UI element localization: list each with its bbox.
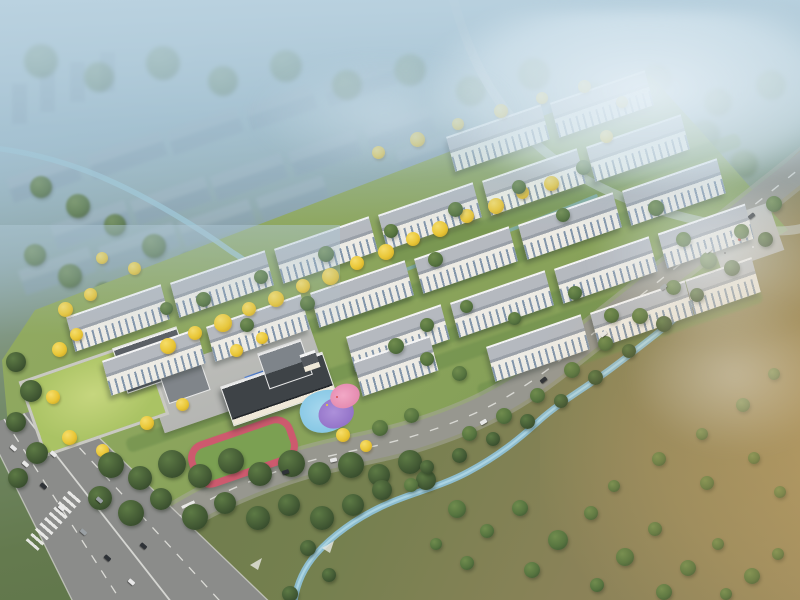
tree — [430, 538, 442, 550]
tree — [758, 232, 773, 247]
tree — [496, 408, 512, 424]
tree — [128, 466, 152, 490]
tree — [342, 494, 364, 516]
tree — [648, 522, 662, 536]
tree — [360, 440, 372, 452]
tree — [318, 246, 334, 262]
tree — [420, 352, 434, 366]
tree — [404, 408, 419, 423]
tree — [254, 270, 268, 284]
tree — [536, 92, 548, 104]
tree — [308, 462, 331, 485]
pedestrian — [752, 246, 754, 248]
tree — [188, 326, 202, 340]
tree — [616, 548, 634, 566]
tree — [230, 344, 243, 357]
tree — [242, 302, 256, 316]
tree — [268, 291, 284, 307]
tree — [524, 562, 540, 578]
tree — [128, 262, 141, 275]
tree — [700, 252, 717, 269]
tree — [384, 224, 398, 238]
tree — [420, 460, 434, 474]
tree — [240, 318, 254, 332]
tree — [460, 556, 474, 570]
tree — [372, 420, 388, 436]
tree — [744, 568, 760, 584]
tree — [196, 292, 211, 307]
tree — [494, 104, 508, 118]
tree — [588, 370, 603, 385]
tree — [512, 180, 526, 194]
tree — [616, 96, 628, 108]
tree — [548, 530, 568, 550]
tree — [680, 560, 696, 576]
tree — [58, 302, 73, 317]
play-equipment — [336, 396, 338, 398]
tree — [460, 300, 473, 313]
tree — [568, 286, 582, 300]
tree — [652, 452, 666, 466]
tree — [448, 500, 466, 518]
tree — [748, 452, 760, 464]
tree — [98, 452, 124, 478]
tree — [372, 480, 392, 500]
tree — [322, 568, 336, 582]
tree — [590, 578, 604, 592]
tree — [52, 342, 67, 357]
tree — [564, 362, 580, 378]
pedestrian — [724, 252, 726, 254]
tree — [452, 448, 467, 463]
tree — [556, 208, 570, 222]
tree — [8, 468, 28, 488]
tree — [452, 366, 467, 381]
tree — [712, 538, 724, 550]
tree — [278, 494, 300, 516]
tree — [214, 492, 236, 514]
tree — [158, 450, 186, 478]
tree — [520, 414, 535, 429]
tree — [140, 416, 154, 430]
tree — [160, 302, 173, 315]
tree — [774, 486, 786, 498]
tree — [578, 80, 591, 93]
tree — [300, 540, 316, 556]
tree — [768, 368, 780, 380]
tree — [336, 428, 350, 442]
tree — [696, 428, 708, 440]
tree — [432, 221, 448, 237]
tree — [70, 328, 83, 341]
tree — [530, 388, 545, 403]
tree — [388, 338, 404, 354]
tree — [488, 198, 504, 214]
tree — [410, 132, 425, 147]
tree — [448, 202, 463, 217]
tree — [428, 252, 443, 267]
tree — [700, 476, 714, 490]
tree — [296, 279, 310, 293]
tree — [486, 432, 500, 446]
tree — [600, 130, 613, 143]
tree — [584, 506, 598, 520]
tree — [246, 506, 270, 530]
tree — [338, 452, 364, 478]
tree — [656, 316, 672, 332]
tree — [724, 260, 740, 276]
tree — [188, 464, 212, 488]
tree — [350, 256, 364, 270]
tree — [508, 312, 521, 325]
tree — [544, 176, 559, 191]
tree — [576, 160, 591, 175]
tree — [62, 430, 77, 445]
tree — [666, 280, 681, 295]
tree — [690, 288, 704, 302]
tree — [26, 442, 48, 464]
tree — [512, 500, 528, 516]
tree — [676, 232, 691, 247]
tree — [632, 308, 648, 324]
tree — [720, 588, 732, 600]
tree — [182, 504, 208, 530]
tree — [404, 478, 418, 492]
play-equipment — [326, 404, 328, 406]
tree — [46, 390, 60, 404]
tree — [20, 380, 42, 402]
tree — [378, 244, 394, 260]
tree — [772, 548, 784, 560]
tree — [608, 480, 620, 492]
tree — [160, 338, 176, 354]
tree — [598, 336, 613, 351]
tree — [96, 252, 108, 264]
tree — [372, 146, 385, 159]
tree — [398, 450, 422, 474]
tree — [462, 426, 477, 441]
tree — [648, 200, 664, 216]
tree — [452, 118, 464, 130]
creek-upper — [0, 148, 254, 267]
tree — [150, 488, 172, 510]
tree — [6, 352, 26, 372]
tree — [176, 398, 189, 411]
tree — [84, 288, 97, 301]
tree — [420, 318, 434, 332]
tree — [118, 500, 144, 526]
tree — [406, 232, 420, 246]
tree — [282, 586, 298, 600]
tree — [322, 268, 339, 285]
tree — [734, 224, 749, 239]
tree — [736, 398, 750, 412]
aerial-rendering — [0, 0, 800, 600]
tree — [248, 462, 272, 486]
tree — [256, 332, 268, 344]
tree — [300, 296, 315, 311]
tree — [554, 394, 568, 408]
tree — [6, 412, 26, 432]
tree — [604, 308, 619, 323]
tree — [622, 344, 636, 358]
tree — [218, 448, 244, 474]
tree — [480, 524, 494, 538]
tree — [214, 314, 232, 332]
tree — [310, 506, 334, 530]
tree — [766, 196, 782, 212]
road-triangle-marking — [250, 558, 262, 570]
tree — [656, 584, 672, 600]
